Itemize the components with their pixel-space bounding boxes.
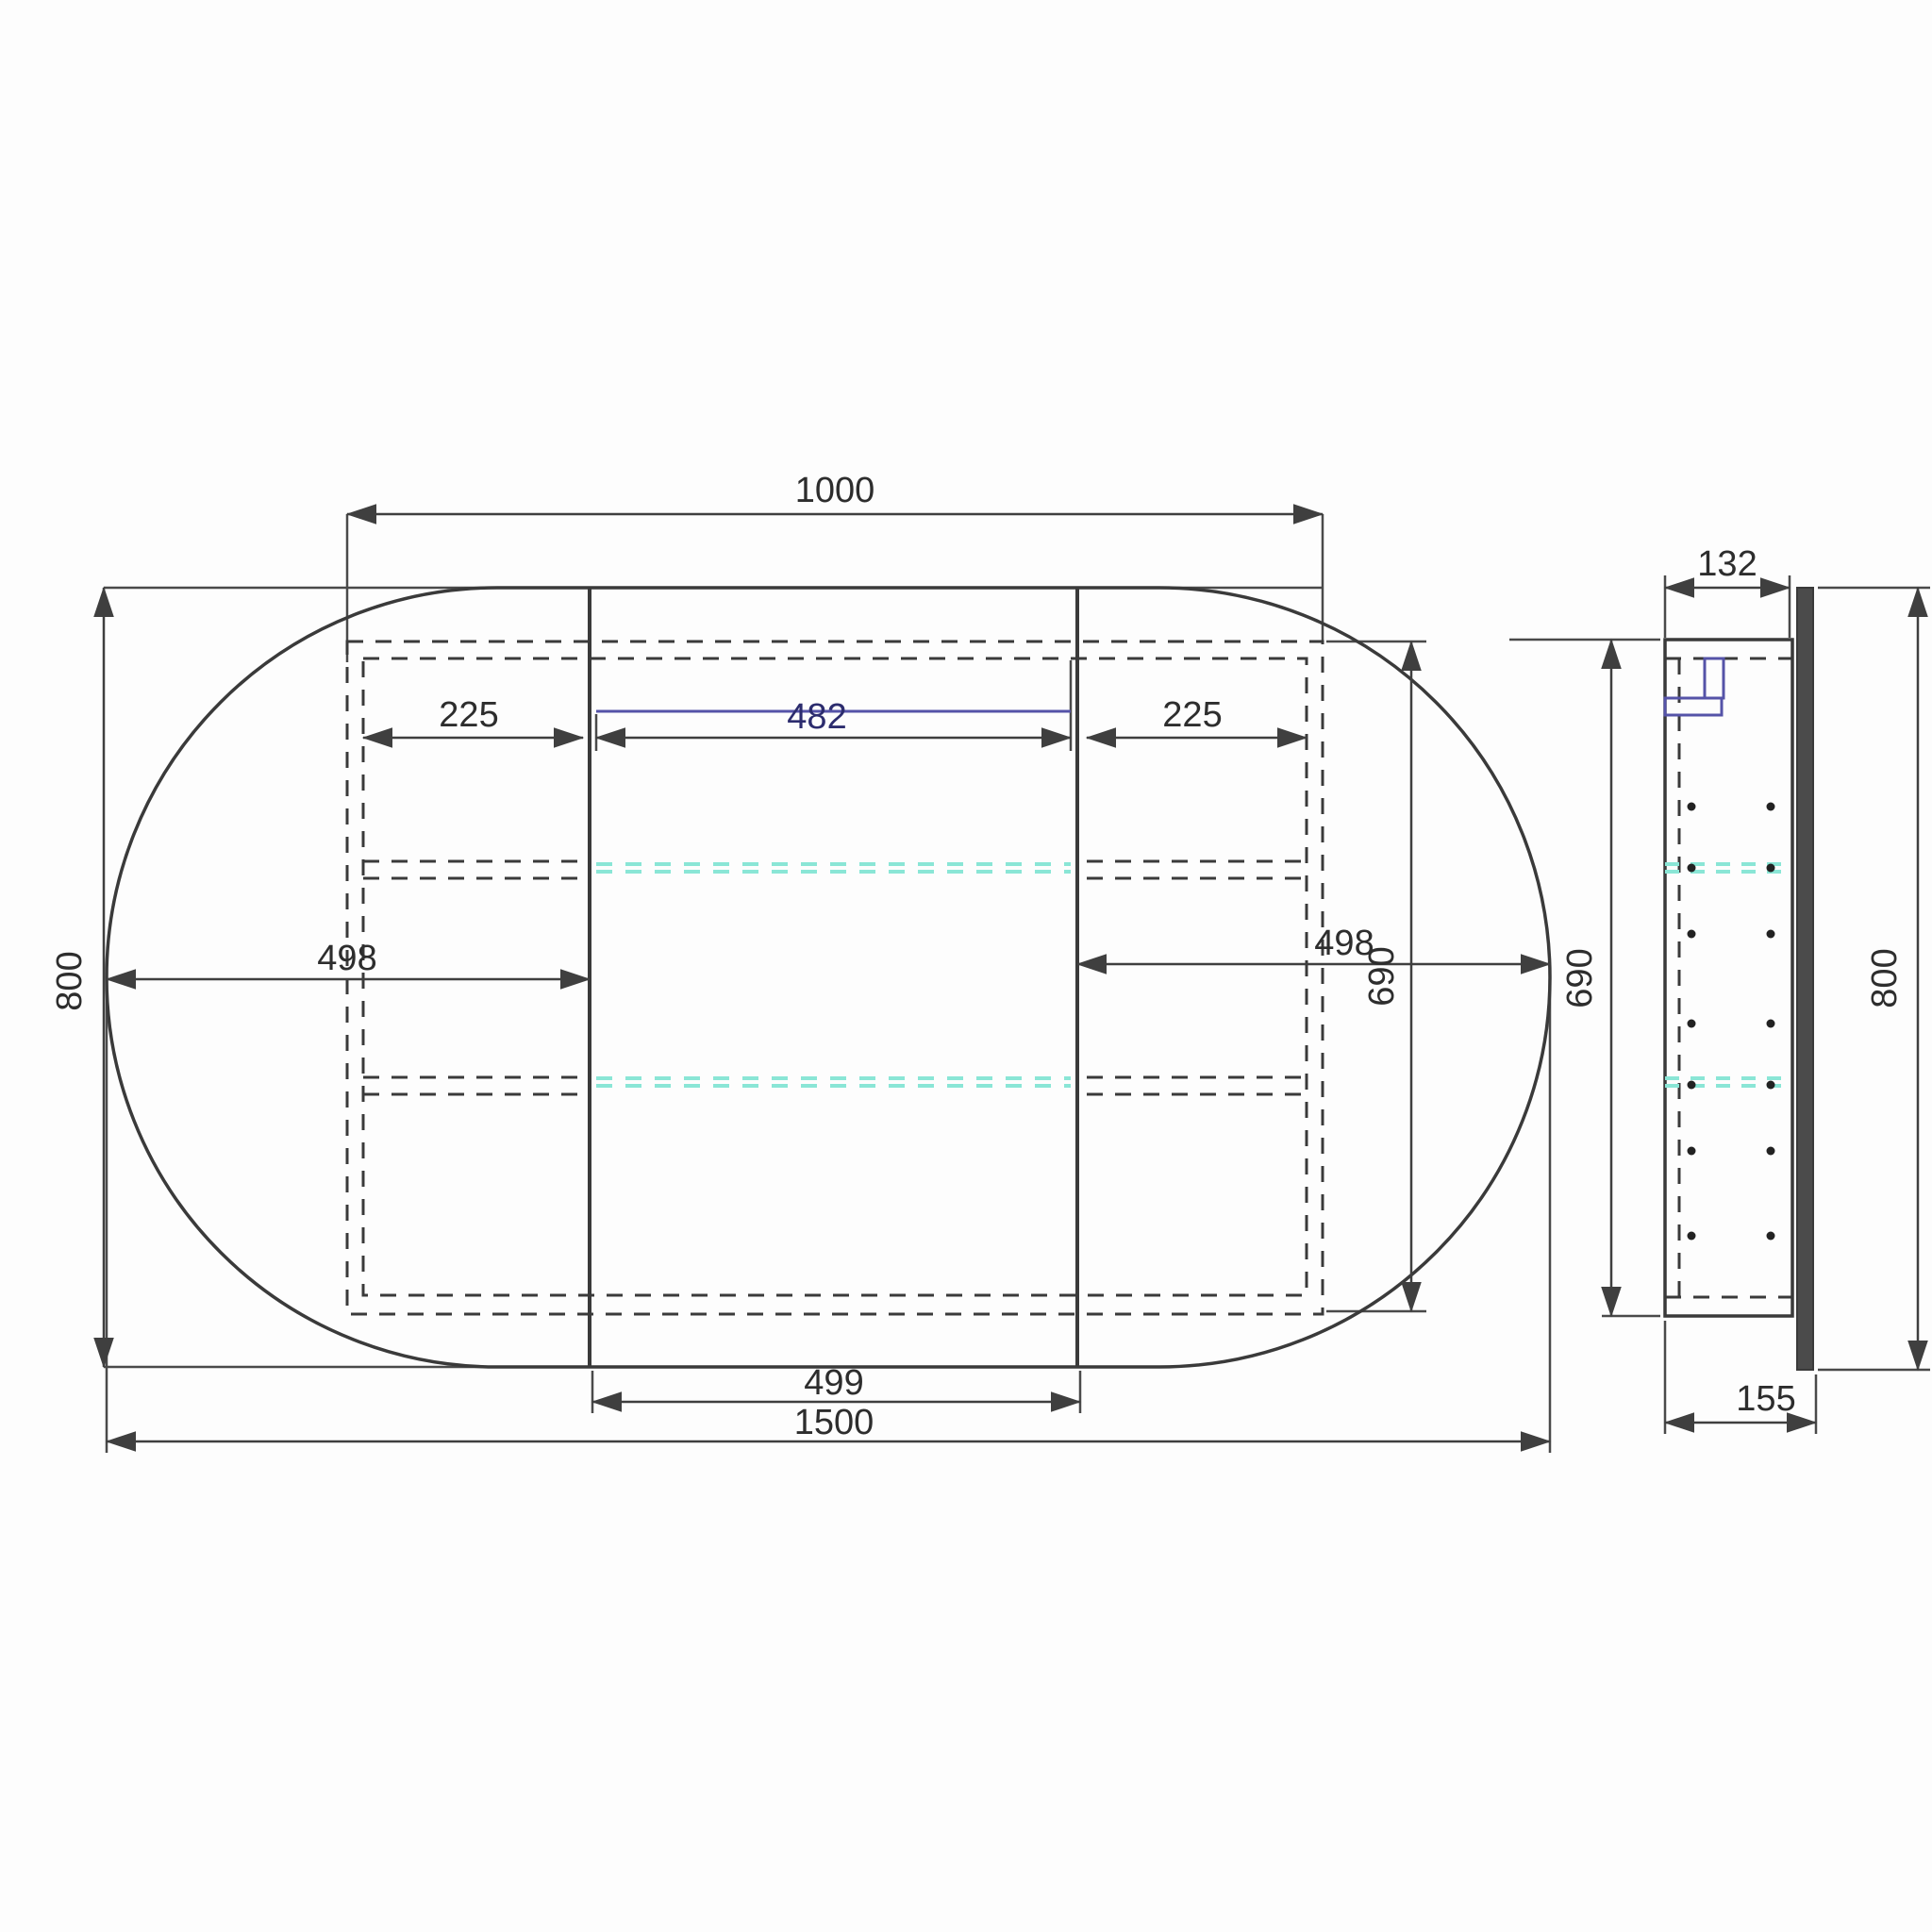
dim-label-132: 132 xyxy=(1697,544,1757,584)
dim-label-499: 499 xyxy=(804,1363,863,1403)
pin-hole xyxy=(1688,1020,1696,1028)
carcass-hidden-lines xyxy=(347,641,1323,1314)
pin-hole xyxy=(1688,1081,1696,1090)
pin-hole xyxy=(1767,803,1775,811)
pin-hole xyxy=(1688,930,1696,939)
glass-shelf-lines-front xyxy=(596,864,1071,1086)
dim-label-800-side: 800 xyxy=(1865,948,1905,1008)
pin-hole xyxy=(1688,864,1696,873)
carcass-inner-dashed xyxy=(363,658,1307,1295)
pin-hole xyxy=(1767,864,1775,873)
dim-label-155: 155 xyxy=(1736,1379,1795,1419)
wall-bracket-vertical xyxy=(1705,658,1724,698)
pin-hole xyxy=(1767,1147,1775,1156)
dim-label-690-side: 690 xyxy=(1560,948,1600,1008)
mirror-door-panel xyxy=(1797,588,1813,1370)
dim-label-225-right: 225 xyxy=(1162,695,1222,735)
side-view: 132 690 800 155 xyxy=(1509,544,1930,1434)
dim-label-1500: 1500 xyxy=(794,1403,874,1442)
dim-label-1000: 1000 xyxy=(795,471,875,510)
glass-shelf-lines-side xyxy=(1665,864,1792,1086)
technical-drawing-canvas: 1000 225 482 225 498 498 690 800 499 150… xyxy=(0,0,1932,1932)
drawing-svg: 1000 225 482 225 498 498 690 800 499 150… xyxy=(0,0,1932,1932)
pin-hole xyxy=(1688,803,1696,811)
wall-bracket xyxy=(1665,658,1724,715)
pin-hole xyxy=(1767,1232,1775,1241)
shelf-pin-holes xyxy=(1688,803,1775,1241)
pin-hole xyxy=(1767,1081,1775,1090)
wall-bracket-horizontal xyxy=(1665,698,1722,715)
pin-hole xyxy=(1688,1232,1696,1241)
pin-hole xyxy=(1688,1147,1696,1156)
front-view: 1000 225 482 225 498 498 690 800 499 150… xyxy=(50,471,1550,1453)
dim-label-225-left: 225 xyxy=(439,695,498,735)
dim-label-498-left: 498 xyxy=(317,939,376,978)
side-hidden-lines xyxy=(1665,658,1792,1297)
front-extension-lines xyxy=(104,514,1550,1453)
dim-label-690-front: 690 xyxy=(1362,946,1402,1006)
pin-hole xyxy=(1767,1020,1775,1028)
side-carcass-box xyxy=(1665,640,1792,1316)
dim-label-800-front: 800 xyxy=(50,951,90,1010)
pin-hole xyxy=(1767,930,1775,939)
carcass-outer-dashed xyxy=(347,641,1323,1314)
dim-label-482: 482 xyxy=(787,697,846,737)
